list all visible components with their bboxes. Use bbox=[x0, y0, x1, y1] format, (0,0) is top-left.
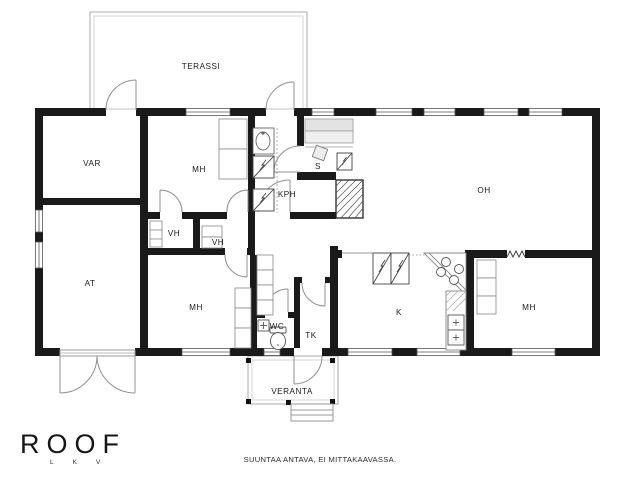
window bbox=[36, 210, 43, 232]
floorplan-page: { "floorplan": { "rooms": { "terassi": "… bbox=[0, 0, 640, 480]
window bbox=[186, 109, 230, 116]
room-label-tk: TK bbox=[305, 331, 317, 340]
door-arc bbox=[160, 190, 182, 212]
fridge-freezer-units bbox=[373, 253, 409, 284]
dryer-icon bbox=[253, 189, 274, 211]
sauna-heater-icon bbox=[337, 153, 352, 170]
room-label-mh-lower: MH bbox=[189, 303, 203, 312]
room-label-sauna: S bbox=[315, 162, 321, 171]
door-arc bbox=[227, 190, 248, 212]
window bbox=[529, 109, 562, 116]
window bbox=[348, 349, 392, 356]
sauna-benches bbox=[305, 119, 353, 147]
door-arc bbox=[302, 283, 325, 306]
room-label-kitchen: K bbox=[396, 308, 402, 317]
terrace-outline bbox=[90, 12, 307, 109]
door-arc bbox=[266, 82, 294, 110]
window bbox=[376, 109, 412, 116]
room-label-var: VAR bbox=[83, 159, 101, 168]
corner-stove bbox=[424, 253, 466, 295]
veranda-steps bbox=[291, 404, 333, 421]
room-label-at: AT bbox=[85, 279, 96, 288]
veranda-posts bbox=[246, 358, 335, 405]
room-label-veranta: VERANTA bbox=[271, 387, 313, 396]
room-label-oh: OH bbox=[477, 186, 490, 195]
window bbox=[182, 349, 230, 356]
window bbox=[36, 242, 43, 268]
room-label-kph: KPH bbox=[278, 190, 296, 199]
disclaimer-text: SUUNTAA ANTAVA, EI MITTAKAAVASSA. bbox=[0, 455, 640, 464]
garage-door-arcs bbox=[60, 356, 135, 393]
window bbox=[512, 349, 555, 356]
bathroom-sink bbox=[253, 128, 274, 154]
room-label-mh-top: MH bbox=[192, 165, 206, 174]
door-arc bbox=[225, 255, 247, 277]
sauna-stool bbox=[312, 145, 327, 160]
door-arc bbox=[106, 80, 136, 110]
room-label-vh1: VH bbox=[168, 229, 180, 238]
window bbox=[312, 109, 334, 116]
door-arc bbox=[274, 146, 300, 172]
door-arcs bbox=[60, 80, 325, 393]
fireplace bbox=[336, 180, 363, 218]
room-label-terassi: TERASSI bbox=[182, 62, 221, 71]
floorplan-svg: TERASSI VAR MH KPH S OH VH VH AT MH WC T… bbox=[0, 0, 640, 480]
exterior-walls bbox=[35, 108, 600, 356]
window bbox=[484, 109, 518, 116]
room-label-vh2: VH bbox=[212, 238, 224, 247]
wc-sink bbox=[258, 320, 269, 331]
room-label-wc: WC bbox=[270, 322, 285, 331]
window bbox=[424, 109, 455, 116]
room-label-mh-right: MH bbox=[522, 303, 536, 312]
kitchen-sink bbox=[448, 315, 464, 345]
zigzag-opening bbox=[507, 251, 525, 257]
washer-icon bbox=[253, 156, 274, 178]
fixtures bbox=[150, 119, 496, 350]
